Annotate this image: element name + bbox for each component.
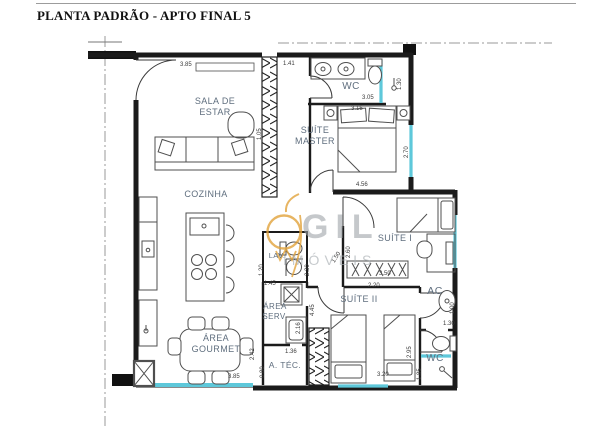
- shaft-box: [134, 361, 154, 386]
- beds-suite-2: [331, 315, 415, 383]
- room-label-area-gourmet: ÁREA GOURMET: [170, 333, 262, 355]
- watermark-subtitle: IMÓVEIS: [283, 252, 376, 268]
- dimension-label: 1.85: [417, 368, 424, 380]
- dimension-label: 2.20: [368, 283, 380, 290]
- dimension-label: 1.00: [450, 302, 457, 314]
- dimension-label: 2.70: [404, 146, 411, 158]
- room-label-wc-master: WC: [331, 81, 371, 93]
- dimension-label: 1.45: [264, 281, 276, 288]
- dimension-label: 2.16: [296, 322, 303, 334]
- room-label-wc-2: WC: [419, 353, 451, 365]
- kitchen-counter: [139, 197, 157, 290]
- room-label-ac: AC: [419, 285, 451, 298]
- dimension-label: 4.45: [310, 304, 317, 316]
- dimension-label: 4.56: [356, 182, 368, 189]
- dimension-label: 3.50: [379, 271, 391, 278]
- sofa: [155, 137, 254, 170]
- floor-plan-page: PLANTA PADRÃO - APTO FINAL 5: [0, 0, 613, 432]
- kitchen-island: [186, 213, 234, 301]
- dimension-label: 1.05: [257, 128, 264, 140]
- dimension-label: 3.85: [180, 62, 192, 69]
- dimension-label: 1.30: [443, 321, 455, 328]
- room-label-area-serv: ÁREA SERV.: [253, 302, 297, 321]
- room-label-a-tec: A. TÉC.: [260, 360, 310, 370]
- bed-master: [338, 106, 396, 172]
- room-label-cozinha: COZINHA: [170, 189, 242, 200]
- dimension-label: 0.80: [260, 366, 267, 378]
- room-label-suite-2: SUÍTE II: [327, 294, 391, 305]
- dimension-label: 1.20: [259, 264, 266, 276]
- room-label-suite-master: SUÍTE MASTER: [284, 125, 346, 147]
- dimension-label: 1.36: [285, 349, 297, 356]
- dimension-label: 3.15: [351, 106, 363, 113]
- dimension-label: 2.42: [250, 348, 257, 360]
- dimension-label: 3.20: [377, 372, 389, 379]
- room-label-sala-de-estar: SALA DE ESTAR: [175, 96, 255, 118]
- bed-suite-1: [397, 198, 455, 232]
- dimension-label: 3.05: [362, 95, 374, 102]
- dimension-label: 2.95: [407, 346, 414, 358]
- watermark-brand: GIL: [302, 208, 380, 247]
- tv-rack: [196, 63, 254, 71]
- dimension-label: 1.41: [283, 61, 295, 68]
- gourmet-counter: [139, 300, 157, 346]
- dimension-label: 3.85: [228, 374, 240, 381]
- dimension-label: 1.30: [397, 78, 404, 90]
